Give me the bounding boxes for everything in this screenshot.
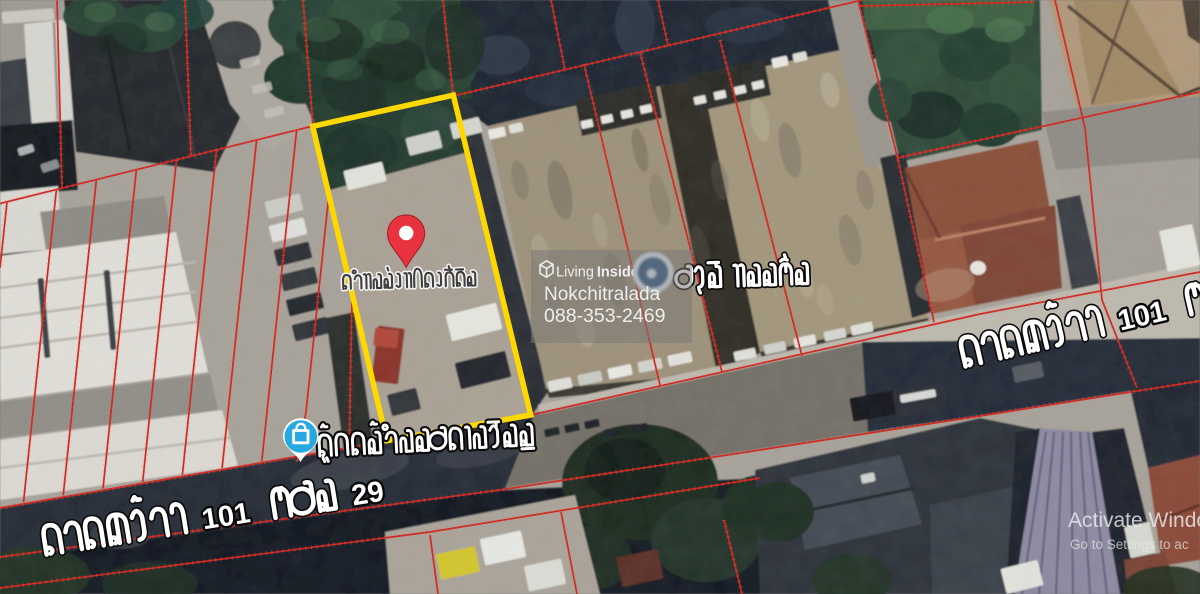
svg-text:Activate Windo: Activate Windo (1068, 509, 1200, 532)
svg-text:088-353-2469: 088-353-2469 (544, 305, 665, 327)
svg-text:Go to Settings to ac: Go to Settings to ac (1070, 537, 1189, 552)
svg-text:29: 29 (349, 476, 386, 513)
svg-text:LivingInsider: LivingInsider (556, 265, 645, 281)
svg-text:Nokchitralada: Nokchitralada (544, 284, 661, 305)
